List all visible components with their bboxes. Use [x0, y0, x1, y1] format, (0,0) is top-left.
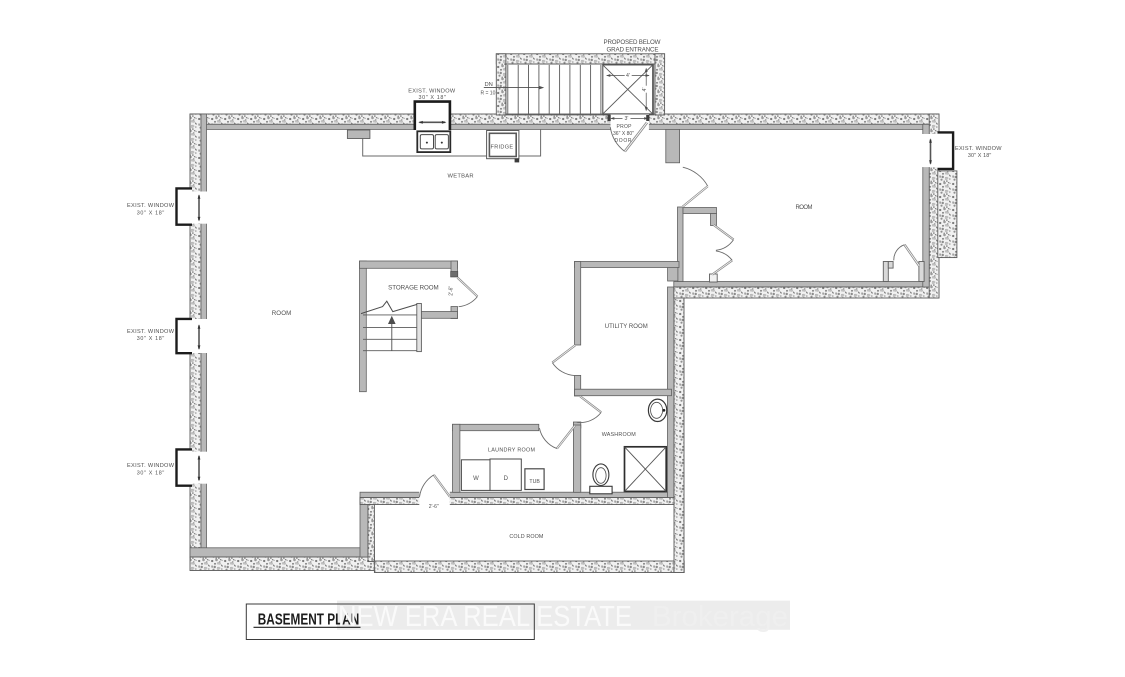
- svg-text:LAUNDRY ROOM: LAUNDRY ROOM: [488, 447, 536, 453]
- svg-text:2'-6": 2'-6": [429, 504, 439, 510]
- svg-text:PROPOSED BELOW: PROPOSED BELOW: [604, 39, 661, 46]
- svg-text:DN: DN: [485, 82, 493, 88]
- svg-text:COLD ROOM: COLD ROOM: [509, 534, 544, 540]
- svg-text:TUB: TUB: [529, 479, 540, 485]
- svg-text:Brokerage: Brokerage: [652, 601, 788, 633]
- svg-text:R = 10: R = 10: [481, 90, 496, 96]
- svg-text:2'-6": 2'-6": [449, 286, 455, 296]
- svg-text:WETBAR: WETBAR: [448, 173, 474, 179]
- svg-text:4': 4': [626, 73, 630, 79]
- svg-text:30" X 18": 30" X 18": [137, 211, 165, 217]
- svg-text:36" X 80": 36" X 80": [613, 131, 634, 137]
- svg-text:EXIST. WINDOW: EXIST. WINDOW: [127, 329, 175, 335]
- svg-text:W: W: [473, 476, 479, 482]
- svg-text:3': 3': [625, 116, 629, 122]
- svg-text:EXIST. WINDOW: EXIST. WINDOW: [127, 463, 175, 469]
- svg-text:EXIST. WINDOW: EXIST. WINDOW: [955, 146, 1002, 152]
- svg-text:PROP: PROP: [617, 124, 633, 130]
- svg-text:30" X 18": 30" X 18": [418, 95, 446, 101]
- svg-text:30" X 18": 30" X 18": [137, 336, 165, 342]
- svg-text:GRAD ENTRANCE: GRAD ENTRANCE: [607, 47, 659, 54]
- svg-text:EXIST. WINDOW: EXIST. WINDOW: [408, 88, 456, 94]
- svg-text:WASHROOM: WASHROOM: [602, 432, 637, 438]
- svg-text:ROOM: ROOM: [796, 205, 813, 211]
- svg-text:NEW ERA REAL ESTATE: NEW ERA REAL ESTATE: [338, 601, 632, 633]
- svg-text:4': 4': [642, 88, 648, 92]
- svg-text:UTILITY ROOM: UTILITY ROOM: [605, 324, 648, 330]
- svg-text:EXIST. WINDOW: EXIST. WINDOW: [127, 203, 175, 209]
- svg-text:STORAGE ROOM: STORAGE ROOM: [388, 285, 439, 292]
- svg-text:30" X 18": 30" X 18": [968, 153, 992, 159]
- svg-text:D: D: [504, 476, 509, 482]
- svg-text:FRIDGE: FRIDGE: [491, 144, 514, 150]
- svg-text:ROOM: ROOM: [272, 310, 292, 317]
- svg-text:DOOR: DOOR: [615, 138, 632, 144]
- svg-text:30" X 18": 30" X 18": [137, 471, 165, 477]
